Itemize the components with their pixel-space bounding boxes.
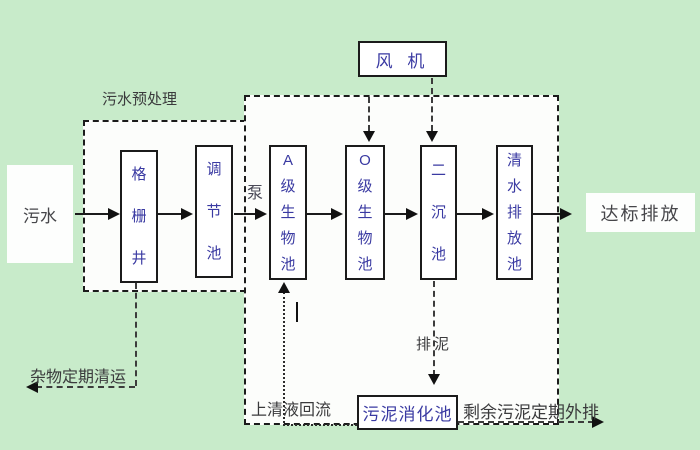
supernatant-return-label: 上清液回流 <box>251 396 331 420</box>
clear-water-discharge-tank: 清水排放池 <box>496 145 533 280</box>
obio-to-sedimentation-line <box>385 213 406 215</box>
pump-label: 泵 <box>247 179 263 203</box>
arrowhead-icon <box>181 208 193 220</box>
arrowhead-icon <box>406 208 418 220</box>
air-to-sedimentation-line <box>431 97 433 131</box>
arrowhead-icon <box>428 374 440 385</box>
influent-label: 污水 <box>23 202 57 227</box>
arrowhead-icon <box>363 131 375 142</box>
blower-label: 风 机 <box>376 47 430 72</box>
secondary-sedimentation-tank: 二沉池 <box>420 145 457 280</box>
regulating-tank-label: 调节池 <box>205 149 223 275</box>
arrowhead-icon <box>278 282 290 293</box>
discharge-label: 达标排放 <box>601 200 681 226</box>
sludge-digestion-tank: 污泥消化池 <box>357 395 458 430</box>
tick-mark <box>296 302 298 322</box>
gridwell-debris-line <box>135 283 137 386</box>
influent-box: 污水 <box>7 165 73 263</box>
abio-to-obio-line <box>307 213 331 215</box>
arrowhead-icon <box>331 208 343 220</box>
regulating-tank: 调节池 <box>195 145 233 278</box>
air-to-obio-line <box>368 97 370 131</box>
a-bio-tank: A级生物池 <box>269 145 307 280</box>
sludge-digestion-label: 污泥消化池 <box>363 400 453 425</box>
sedimentation-to-clearwater-line <box>457 213 482 215</box>
secondary-sedimentation-label: 二沉池 <box>430 150 448 276</box>
a-bio-tank-label: A级生物池 <box>279 148 297 278</box>
arrowhead-icon <box>482 208 494 220</box>
wastewater-process-flow-diagram: 污水预处理 污水 达标排放 风 机 格栅井 调节池 A级生物池 O级生物池 二沉… <box>0 0 700 450</box>
clear-water-discharge-label: 清水排放池 <box>506 148 524 278</box>
sludge-discharge-line <box>433 281 435 376</box>
blower-box: 风 机 <box>358 41 447 77</box>
excess-sludge-label: 剩余污泥定期外排 <box>463 398 599 423</box>
influent-to-gridwell-line <box>75 213 108 215</box>
arrowhead-icon <box>255 208 267 220</box>
o-bio-tank-label: O级生物池 <box>356 148 374 278</box>
discharge-box: 达标排放 <box>586 193 695 232</box>
sludge-discharge-label: 排泥 <box>416 333 452 354</box>
regulating-to-abio-line <box>234 213 255 215</box>
arrowhead-icon <box>108 208 120 220</box>
supernatant-return-hline <box>283 424 357 426</box>
blower-connector-line <box>431 78 433 94</box>
grid-well-label: 格栅井 <box>130 154 148 280</box>
o-bio-tank: O级生物池 <box>345 145 385 280</box>
debris-removal-label: 杂物定期清运 <box>30 363 126 387</box>
clearwater-to-discharge-line <box>533 213 560 215</box>
arrowhead-icon <box>560 208 572 220</box>
grid-well-tank: 格栅井 <box>120 150 158 283</box>
arrowhead-icon <box>426 131 438 142</box>
gridwell-to-regulating-line <box>158 213 181 215</box>
pretreatment-group-label: 污水预处理 <box>102 88 177 109</box>
